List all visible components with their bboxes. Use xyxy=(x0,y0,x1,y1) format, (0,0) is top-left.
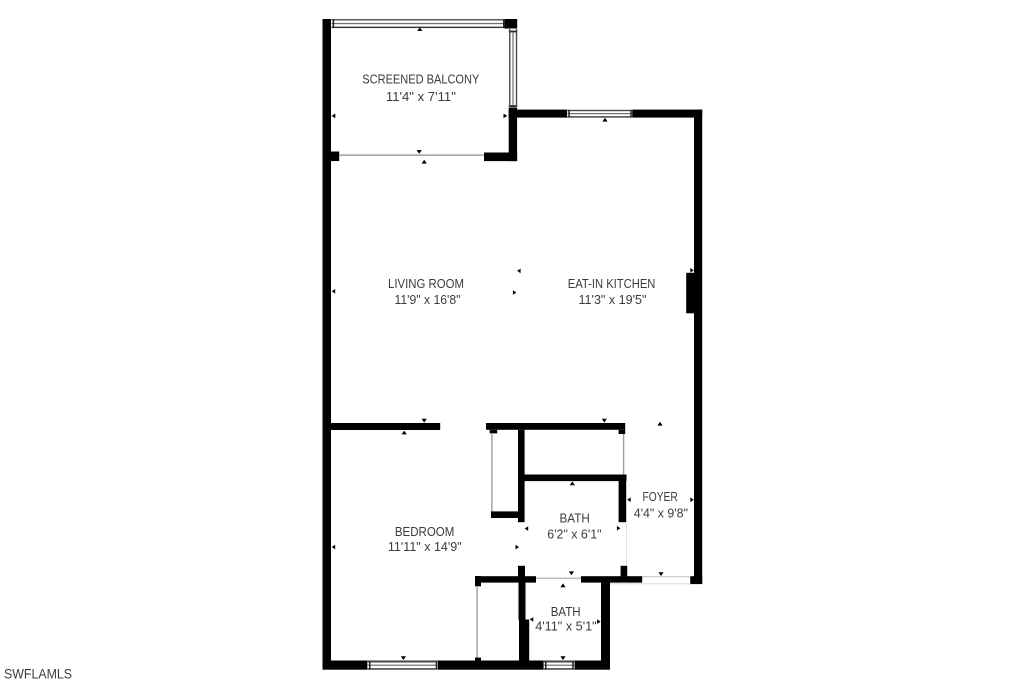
svg-text:LIVING ROOM: LIVING ROOM xyxy=(388,276,464,291)
svg-text:4'11" x 5'1": 4'11" x 5'1" xyxy=(535,619,597,634)
svg-text:SCREENED BALCONY: SCREENED BALCONY xyxy=(362,72,479,87)
svg-text:FOYER: FOYER xyxy=(643,489,678,504)
svg-text:6'2" x 6'1": 6'2" x 6'1" xyxy=(547,527,602,542)
svg-text:BATH: BATH xyxy=(560,511,590,526)
svg-text:SWFLAMLS: SWFLAMLS xyxy=(4,667,72,682)
svg-text:11'3" x 19'5": 11'3" x 19'5" xyxy=(579,292,647,307)
svg-text:BEDROOM: BEDROOM xyxy=(395,524,454,539)
svg-text:11'4" x 7'11": 11'4" x 7'11" xyxy=(386,89,456,104)
svg-text:EAT-IN KITCHEN: EAT-IN KITCHEN xyxy=(568,276,656,291)
svg-text:11'11" x 14'9": 11'11" x 14'9" xyxy=(388,539,462,554)
svg-text:11'9" x 16'8": 11'9" x 16'8" xyxy=(395,292,461,307)
svg-text:BATH: BATH xyxy=(551,604,581,619)
svg-text:4'4" x 9'8": 4'4" x 9'8" xyxy=(634,505,689,520)
